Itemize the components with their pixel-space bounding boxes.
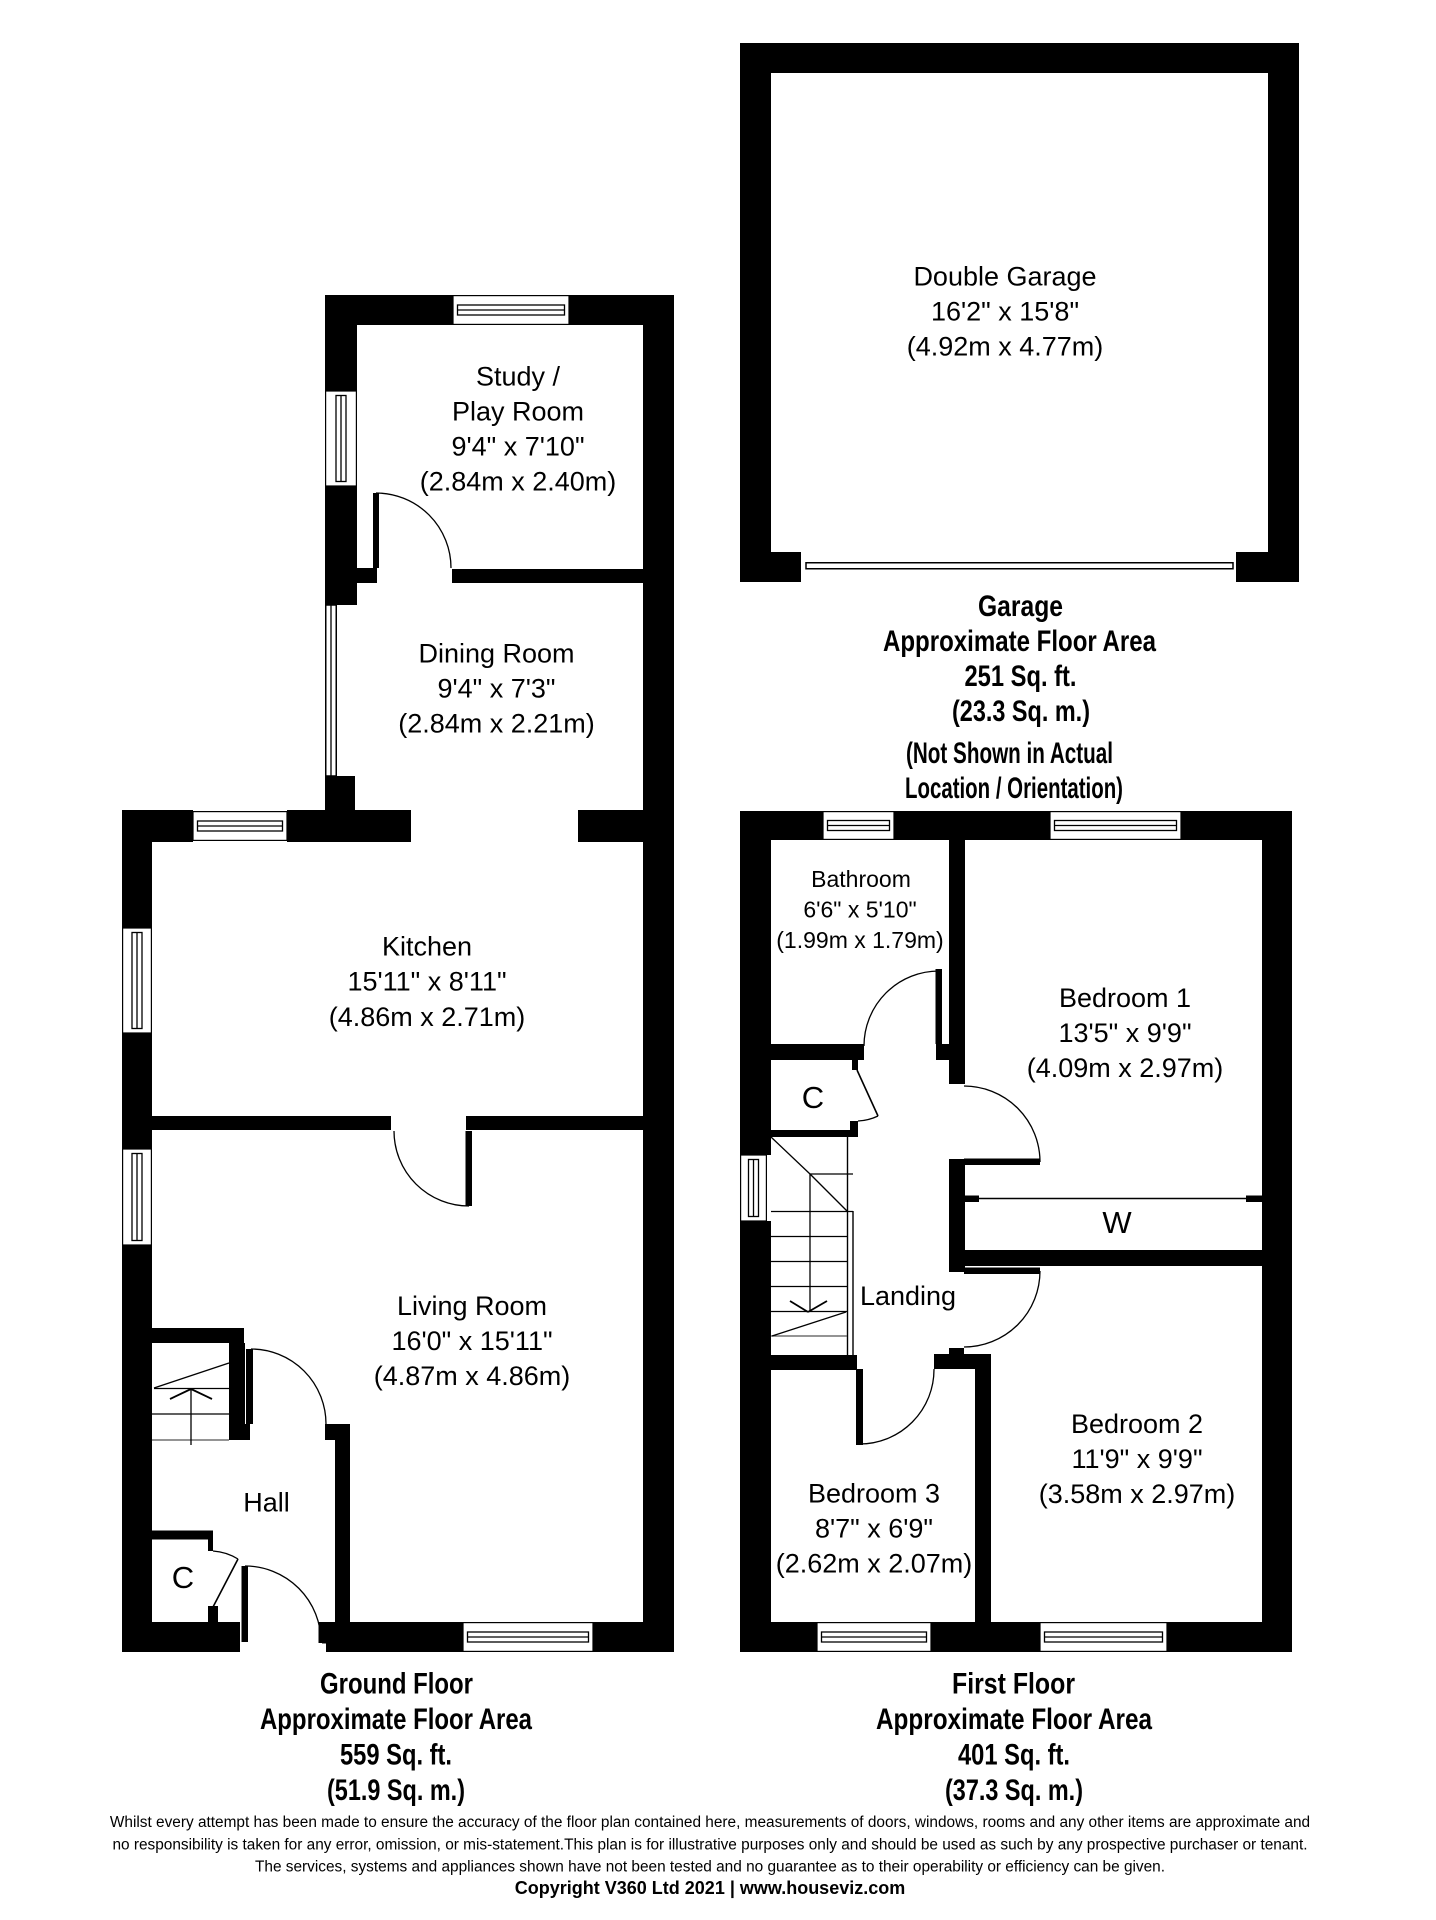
svg-text:(3.58m x 2.97m): (3.58m x 2.97m) [1039, 1479, 1236, 1509]
svg-text:401 Sq. ft.: 401 Sq. ft. [958, 1739, 1070, 1772]
svg-text:9'4" x 7'10": 9'4" x 7'10" [451, 432, 584, 462]
svg-text:(4.86m x 2.71m): (4.86m x 2.71m) [329, 1002, 526, 1032]
svg-text:(Not Shown in Actual: (Not Shown in Actual [906, 737, 1113, 770]
svg-text:11'9" x 9'9": 11'9" x 9'9" [1071, 1444, 1202, 1474]
svg-text:Living Room: Living Room [397, 1291, 547, 1321]
svg-text:Kitchen: Kitchen [382, 932, 472, 962]
svg-text:9'4" x 7'3": 9'4" x 7'3" [437, 674, 555, 704]
svg-text:The services, systems and appl: The services, systems and appliances sho… [255, 1859, 1165, 1876]
svg-text:Location / Orientation): Location / Orientation) [905, 772, 1123, 805]
svg-text:Approximate Floor Area: Approximate Floor Area [876, 1703, 1152, 1736]
svg-text:16'2" x 15'8": 16'2" x 15'8" [931, 297, 1079, 327]
svg-text:6'6" x 5'10": 6'6" x 5'10" [803, 897, 916, 923]
svg-text:(4.09m x 2.97m): (4.09m x 2.97m) [1027, 1053, 1224, 1083]
svg-text:251 Sq. ft.: 251 Sq. ft. [965, 660, 1077, 693]
svg-text:Bedroom 2: Bedroom 2 [1071, 1409, 1203, 1439]
svg-text:Landing: Landing [860, 1281, 956, 1311]
svg-text:Study /: Study / [476, 362, 561, 392]
svg-text:(51.9 Sq. m.): (51.9 Sq. m.) [327, 1774, 465, 1807]
svg-text:(23.3 Sq. m.): (23.3 Sq. m.) [952, 695, 1090, 728]
svg-text:Approximate Floor Area: Approximate Floor Area [883, 625, 1156, 658]
svg-text:(2.84m x 2.40m): (2.84m x 2.40m) [420, 467, 617, 497]
svg-text:C: C [172, 1560, 194, 1595]
svg-text:(2.84m x 2.21m): (2.84m x 2.21m) [398, 709, 595, 739]
svg-text:13'5" x 9'9": 13'5" x 9'9" [1058, 1018, 1191, 1048]
svg-text:(2.62m x 2.07m): (2.62m x 2.07m) [776, 1549, 973, 1579]
svg-text:(4.92m x 4.77m): (4.92m x 4.77m) [907, 332, 1104, 362]
svg-text:559 Sq. ft.: 559 Sq. ft. [340, 1739, 452, 1772]
svg-text:8'7" x 6'9": 8'7" x 6'9" [815, 1514, 933, 1544]
svg-text:Bedroom 3: Bedroom 3 [808, 1479, 940, 1509]
svg-text:no responsibility is taken for: no responsibility is taken for any error… [112, 1836, 1307, 1853]
svg-text:Hall: Hall [243, 1488, 290, 1518]
svg-text:(37.3 Sq. m.): (37.3 Sq. m.) [945, 1774, 1083, 1807]
svg-text:15'11" x 8'11": 15'11" x 8'11" [347, 967, 506, 997]
svg-text:Copyright V360 Ltd 2021 | www.: Copyright V360 Ltd 2021 | www.houseviz.c… [515, 1878, 905, 1898]
svg-text:Bathroom: Bathroom [811, 866, 911, 892]
svg-text:Double Garage: Double Garage [913, 262, 1096, 292]
svg-text:Whilst every attempt has been: Whilst every attempt has been made to en… [110, 1814, 1310, 1831]
svg-text:(4.87m x 4.86m): (4.87m x 4.86m) [374, 1361, 571, 1391]
svg-text:16'0" x 15'11": 16'0" x 15'11" [391, 1326, 552, 1356]
svg-text:W: W [1102, 1205, 1132, 1240]
svg-text:Dining Room: Dining Room [418, 639, 574, 669]
svg-text:C: C [802, 1080, 824, 1115]
svg-text:Ground Floor: Ground Floor [320, 1668, 473, 1701]
svg-text:First Floor: First Floor [952, 1668, 1075, 1701]
svg-text:Approximate Floor Area: Approximate Floor Area [260, 1703, 532, 1736]
svg-text:Garage: Garage [978, 590, 1063, 623]
svg-text:Bedroom 1: Bedroom 1 [1059, 983, 1191, 1013]
svg-text:(1.99m x 1.79m): (1.99m x 1.79m) [776, 927, 943, 953]
svg-text:Play Room: Play Room [452, 397, 584, 427]
